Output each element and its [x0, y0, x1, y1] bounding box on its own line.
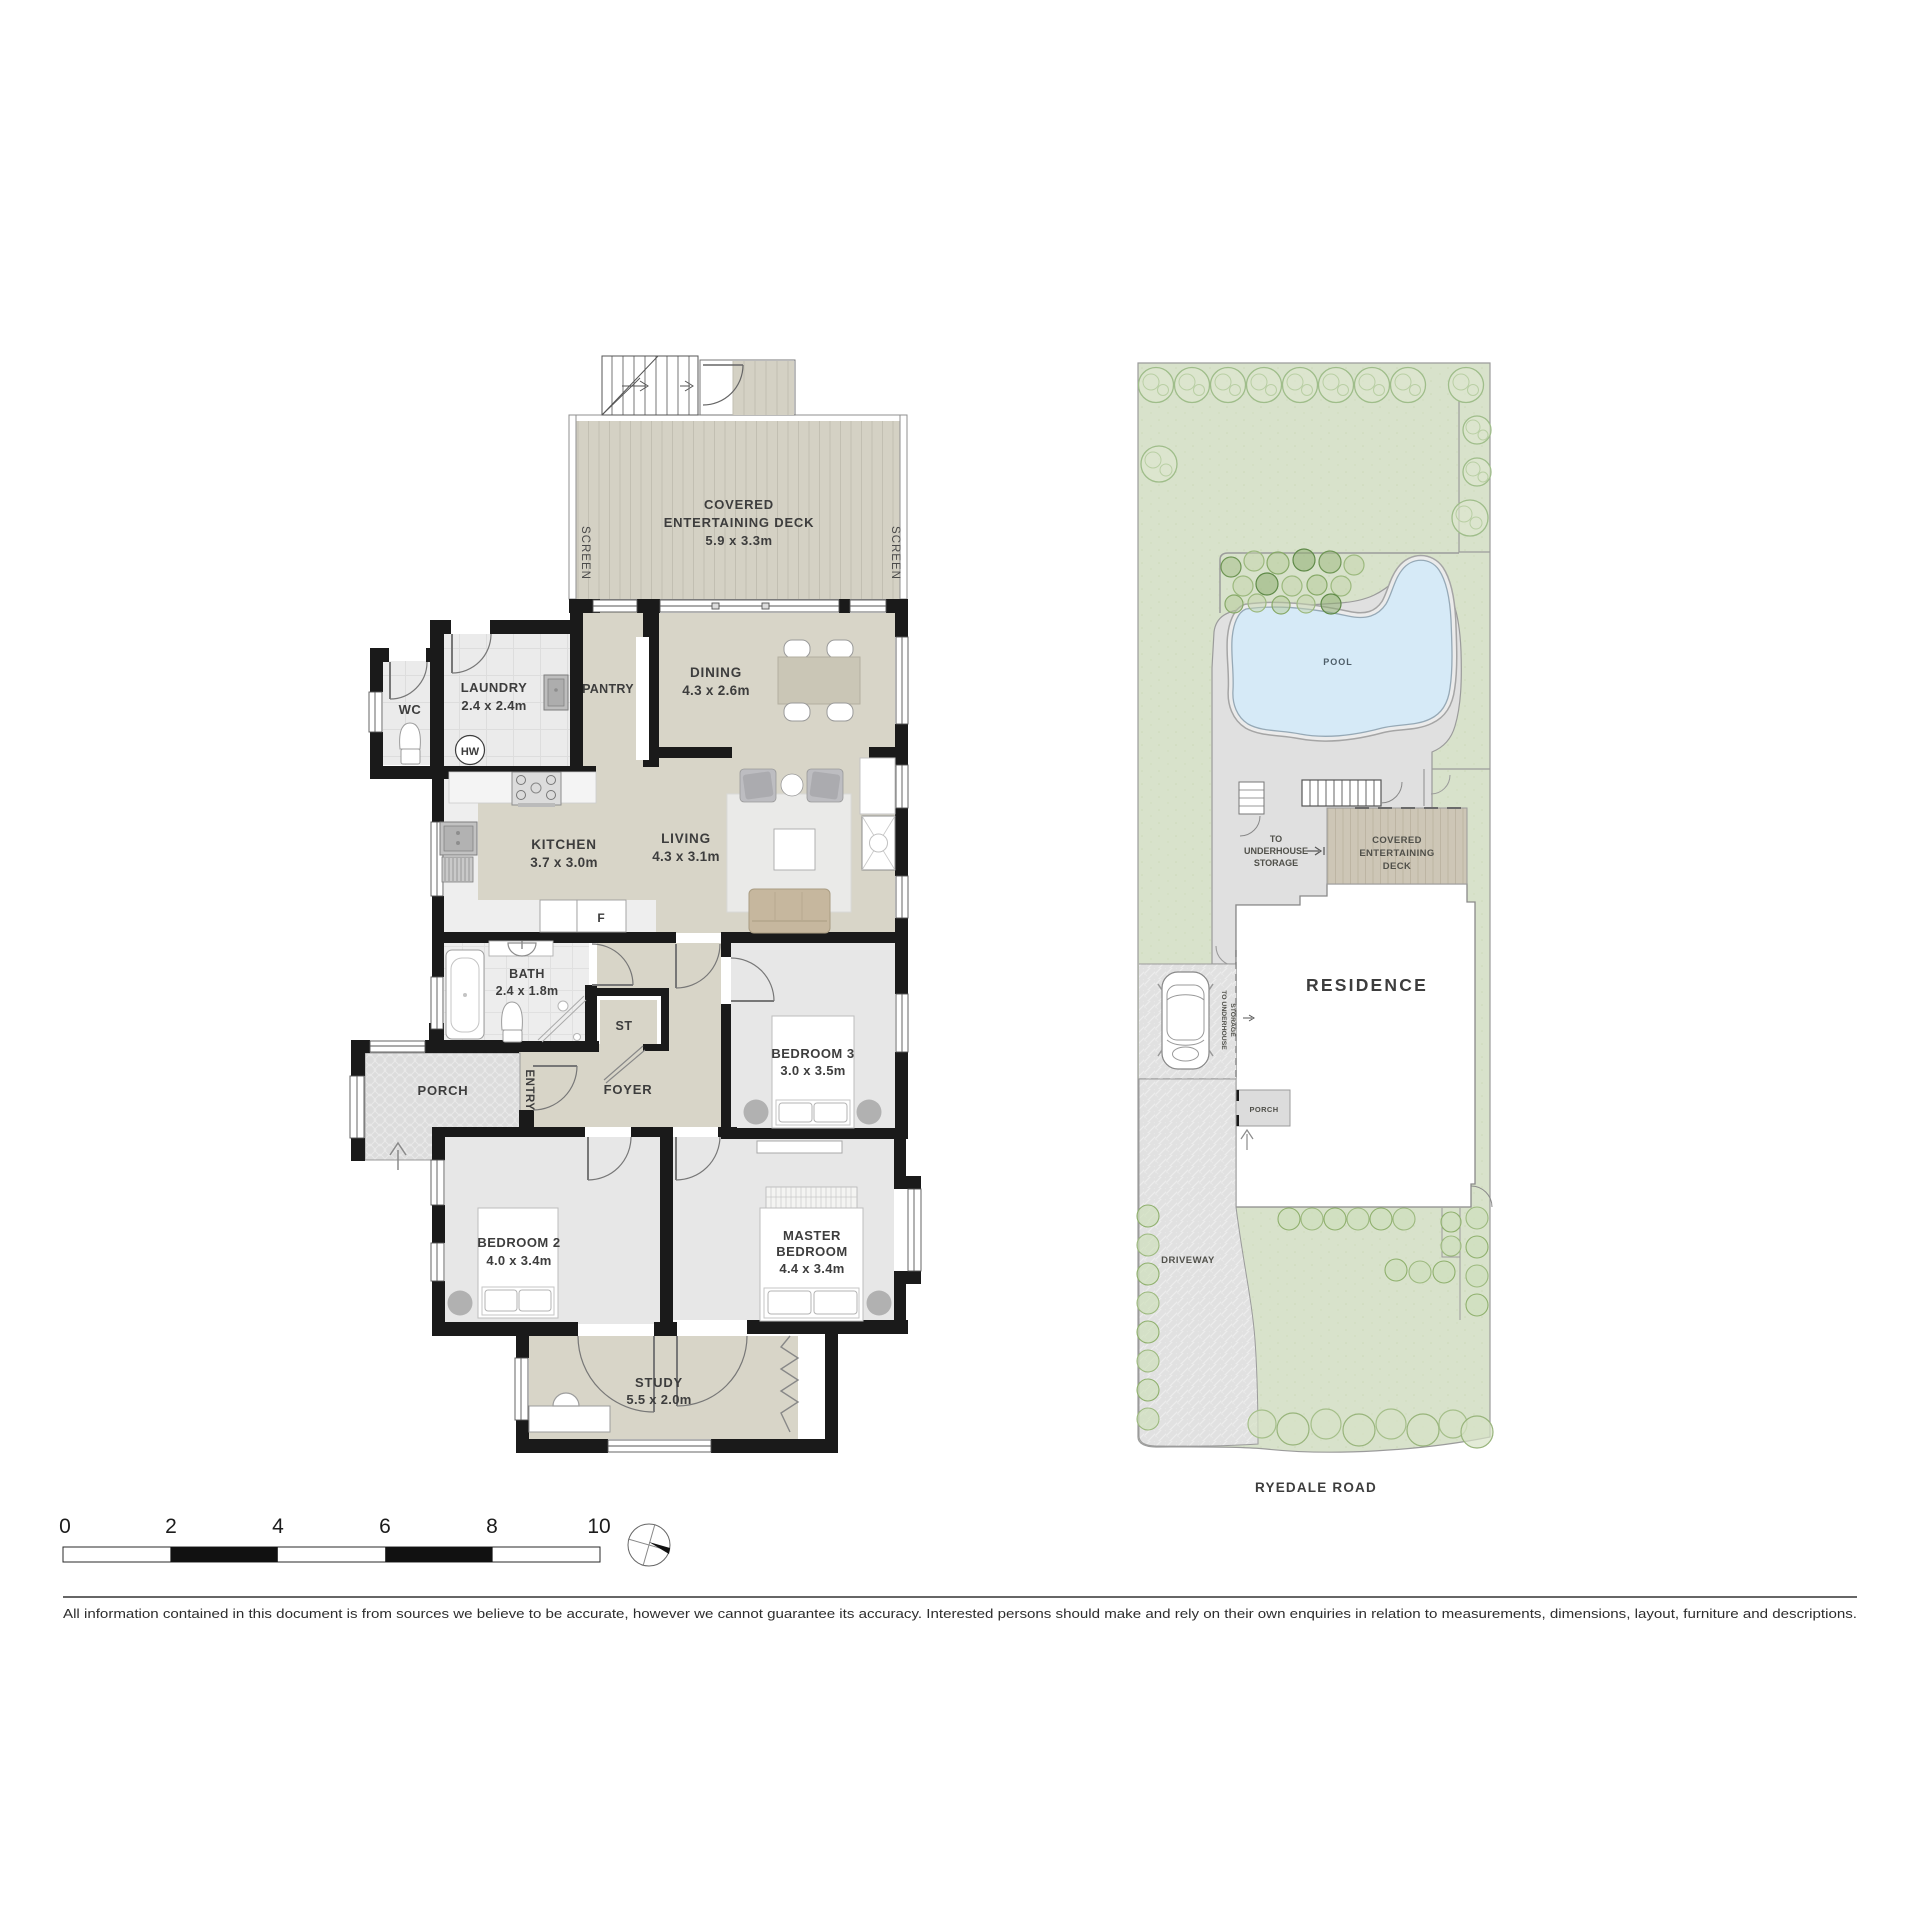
- svg-text:STORAGE: STORAGE: [1254, 858, 1298, 868]
- svg-text:F: F: [597, 911, 604, 925]
- svg-text:RESIDENCE: RESIDENCE: [1306, 975, 1428, 995]
- svg-text:BEDROOM 2: BEDROOM 2: [477, 1235, 560, 1250]
- svg-text:5.9 x 3.3m: 5.9 x 3.3m: [705, 533, 772, 548]
- svg-text:STUDY: STUDY: [635, 1375, 683, 1390]
- svg-text:STORAGE: STORAGE: [1229, 1003, 1236, 1037]
- svg-text:3.0 x 3.5m: 3.0 x 3.5m: [780, 1063, 845, 1078]
- svg-text:BEDROOM 3: BEDROOM 3: [771, 1046, 854, 1061]
- svg-text:All information contained in t: All information contained in this docume…: [63, 1606, 1857, 1621]
- svg-text:10: 10: [587, 1515, 610, 1538]
- svg-text:KITCHEN: KITCHEN: [531, 837, 597, 852]
- svg-text:4: 4: [272, 1515, 284, 1538]
- svg-text:BEDROOM: BEDROOM: [776, 1244, 847, 1259]
- svg-text:4.3 x 2.6m: 4.3 x 2.6m: [682, 683, 750, 698]
- svg-text:COVERED: COVERED: [1372, 835, 1422, 846]
- svg-text:COVERED: COVERED: [704, 497, 774, 512]
- svg-text:PANTRY: PANTRY: [582, 682, 634, 696]
- svg-text:ST: ST: [616, 1019, 633, 1033]
- svg-text:RYEDALE ROAD: RYEDALE ROAD: [1255, 1480, 1377, 1495]
- svg-text:POOL: POOL: [1323, 657, 1353, 667]
- svg-text:PORCH: PORCH: [418, 1083, 469, 1098]
- svg-text:2: 2: [165, 1515, 177, 1538]
- svg-text:2.4 x 2.4m: 2.4 x 2.4m: [461, 698, 526, 713]
- svg-text:WC: WC: [399, 702, 422, 717]
- svg-text:DINING: DINING: [690, 665, 742, 680]
- svg-text:MASTER: MASTER: [783, 1228, 841, 1243]
- svg-text:DRIVEWAY: DRIVEWAY: [1161, 1255, 1215, 1266]
- svg-text:LIVING: LIVING: [661, 831, 711, 846]
- svg-text:5.5 x 2.0m: 5.5 x 2.0m: [626, 1392, 691, 1407]
- svg-text:6: 6: [379, 1515, 391, 1538]
- svg-text:4.0 x 3.4m: 4.0 x 3.4m: [486, 1253, 551, 1268]
- svg-text:0: 0: [59, 1515, 71, 1538]
- svg-text:UNDERHOUSE: UNDERHOUSE: [1244, 846, 1308, 856]
- svg-text:4.3 x 3.1m: 4.3 x 3.1m: [652, 849, 720, 864]
- svg-text:BATH: BATH: [509, 967, 545, 981]
- svg-text:ENTERTAINING DECK: ENTERTAINING DECK: [664, 515, 815, 530]
- svg-text:ENTERTAINING: ENTERTAINING: [1359, 848, 1434, 859]
- svg-text:3.7 x 3.0m: 3.7 x 3.0m: [530, 855, 598, 870]
- svg-text:HW: HW: [461, 746, 480, 758]
- svg-text:PORCH: PORCH: [1249, 1105, 1278, 1114]
- svg-text:SCREEN: SCREEN: [579, 526, 591, 580]
- svg-text:LAUNDRY: LAUNDRY: [461, 680, 528, 695]
- svg-text:TO: TO: [1270, 834, 1282, 844]
- svg-text:4.4 x 3.4m: 4.4 x 3.4m: [779, 1261, 844, 1276]
- svg-text:8: 8: [486, 1515, 498, 1538]
- svg-text:TO UNDERHOUSE: TO UNDERHOUSE: [1220, 990, 1227, 1050]
- svg-text:DECK: DECK: [1383, 861, 1412, 872]
- svg-text:ENTRY: ENTRY: [523, 1069, 535, 1110]
- svg-text:SCREEN: SCREEN: [889, 526, 901, 580]
- svg-text:2.4 x 1.8m: 2.4 x 1.8m: [496, 984, 559, 998]
- svg-text:FOYER: FOYER: [604, 1082, 653, 1097]
